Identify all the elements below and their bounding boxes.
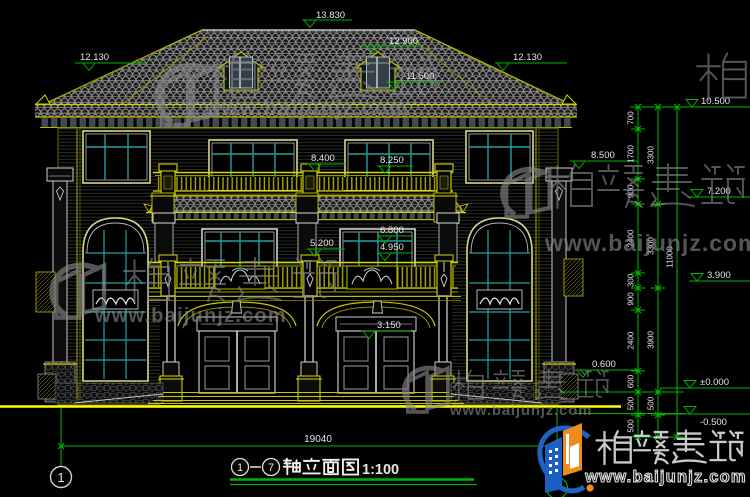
svg-text:6.800: 6.800 bbox=[380, 225, 404, 236]
svg-text:500: 500 bbox=[647, 396, 656, 410]
svg-text:4.950: 4.950 bbox=[380, 242, 404, 253]
svg-text:500: 500 bbox=[627, 396, 636, 410]
svg-text:3.900: 3.900 bbox=[707, 270, 731, 281]
svg-text:600: 600 bbox=[627, 374, 636, 388]
svg-text:3300: 3300 bbox=[647, 146, 656, 164]
svg-text:19040: 19040 bbox=[304, 434, 332, 445]
svg-text:2400: 2400 bbox=[627, 331, 636, 349]
svg-text:3.150: 3.150 bbox=[377, 320, 401, 331]
svg-text:1:100: 1:100 bbox=[362, 462, 399, 478]
svg-text:1: 1 bbox=[237, 462, 243, 474]
svg-text:12.900: 12.900 bbox=[389, 36, 418, 47]
svg-text:5.200: 5.200 bbox=[310, 238, 334, 249]
svg-text:12.130: 12.130 bbox=[80, 52, 109, 63]
svg-text:-0.500: -0.500 bbox=[700, 417, 727, 428]
svg-text:300: 300 bbox=[627, 273, 636, 287]
svg-text:1: 1 bbox=[57, 470, 64, 485]
svg-text:12.130: 12.130 bbox=[513, 52, 542, 63]
svg-text:1700: 1700 bbox=[627, 145, 636, 163]
svg-text:0.600: 0.600 bbox=[592, 359, 616, 370]
svg-text:8.500: 8.500 bbox=[591, 150, 615, 161]
svg-text:8.250: 8.250 bbox=[380, 155, 404, 166]
svg-text:13.830: 13.830 bbox=[316, 10, 345, 21]
svg-text:900: 900 bbox=[627, 292, 636, 306]
svg-text:500: 500 bbox=[627, 419, 636, 433]
svg-text:700: 700 bbox=[627, 111, 636, 125]
svg-text:3900: 3900 bbox=[647, 331, 656, 349]
svg-text:8.400: 8.400 bbox=[311, 153, 335, 164]
svg-text:www.baijunjz.com: www.baijunjz.com bbox=[544, 230, 750, 256]
svg-text:±0.000: ±0.000 bbox=[700, 377, 729, 388]
svg-text:www.baijunjz.com: www.baijunjz.com bbox=[584, 468, 747, 486]
svg-text:7: 7 bbox=[268, 462, 274, 474]
svg-text:www.baijunjz.com: www.baijunjz.com bbox=[449, 402, 592, 419]
svg-text:www.baijunjz.com: www.baijunjz.com bbox=[203, 97, 409, 120]
svg-text:www.baijunjz.com: www.baijunjz.com bbox=[94, 305, 287, 327]
